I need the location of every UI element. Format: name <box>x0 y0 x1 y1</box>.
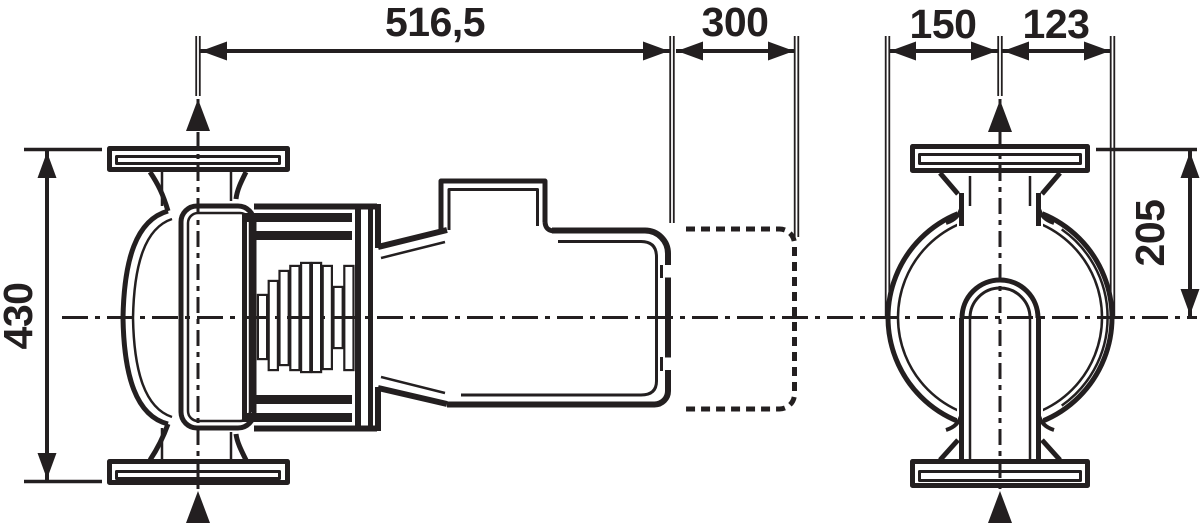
technical-drawing: 516,5 300 150 123 430 205 <box>0 0 1200 528</box>
dimension-label-axis-to-right: 123 <box>1023 1 1090 47</box>
dimension-overall-length: 516,5 <box>200 0 670 61</box>
dimension-label-overall-height: 430 <box>0 283 41 350</box>
dimension-axis-to-left: 150 <box>889 1 998 61</box>
dimension-label-clearance-length: 300 <box>702 0 769 45</box>
flow-arrow-end-top-icon <box>988 100 1012 132</box>
dimension-label-axis-to-flange-top: 205 <box>1127 200 1173 267</box>
dimension-label-overall-length: 516,5 <box>385 0 485 45</box>
dimension-axis-to-right: 123 <box>1002 1 1111 61</box>
flow-arrow-side-top-icon <box>186 99 210 131</box>
dimension-label-axis-to-left: 150 <box>910 1 977 47</box>
flow-arrow-end-bottom-icon <box>988 491 1012 523</box>
flow-arrow-side-bottom-icon <box>186 491 210 523</box>
terminal-box <box>441 181 557 234</box>
dimension-axis-to-flange-top: 205 <box>1127 151 1200 316</box>
dimension-overall-height: 430 <box>0 151 57 480</box>
dimension-clearance-length: 300 <box>676 0 795 61</box>
pump-side-view <box>110 149 795 483</box>
